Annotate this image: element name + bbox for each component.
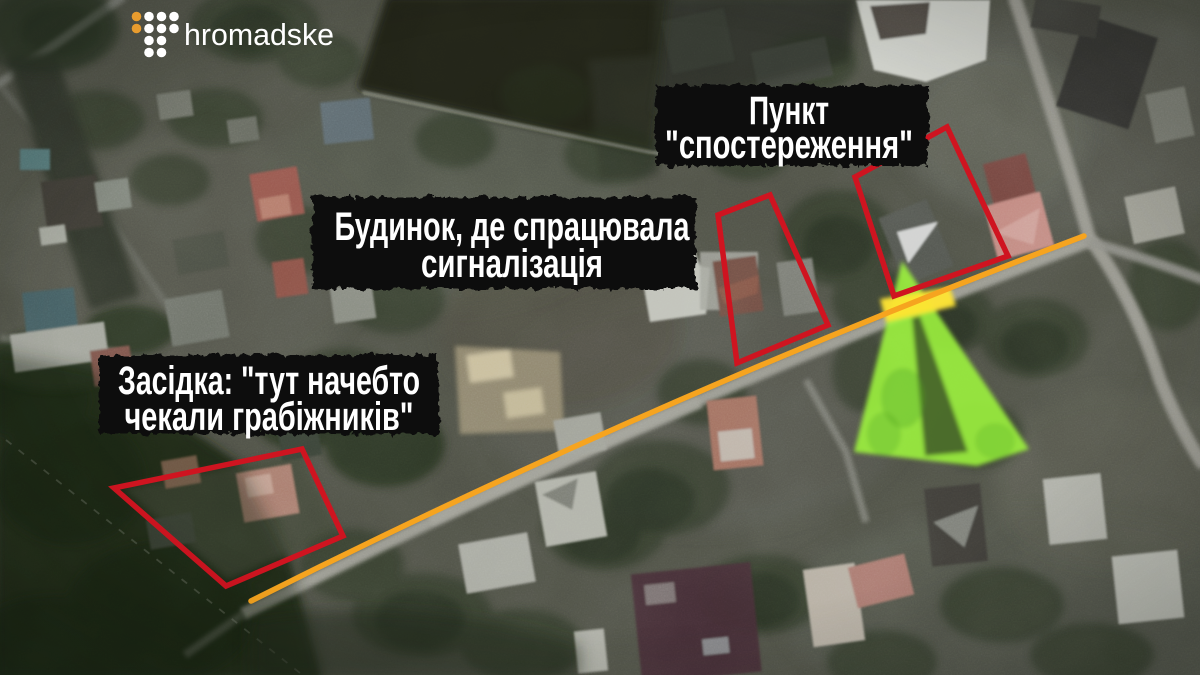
svg-text:hromadske: hromadske: [184, 17, 334, 52]
